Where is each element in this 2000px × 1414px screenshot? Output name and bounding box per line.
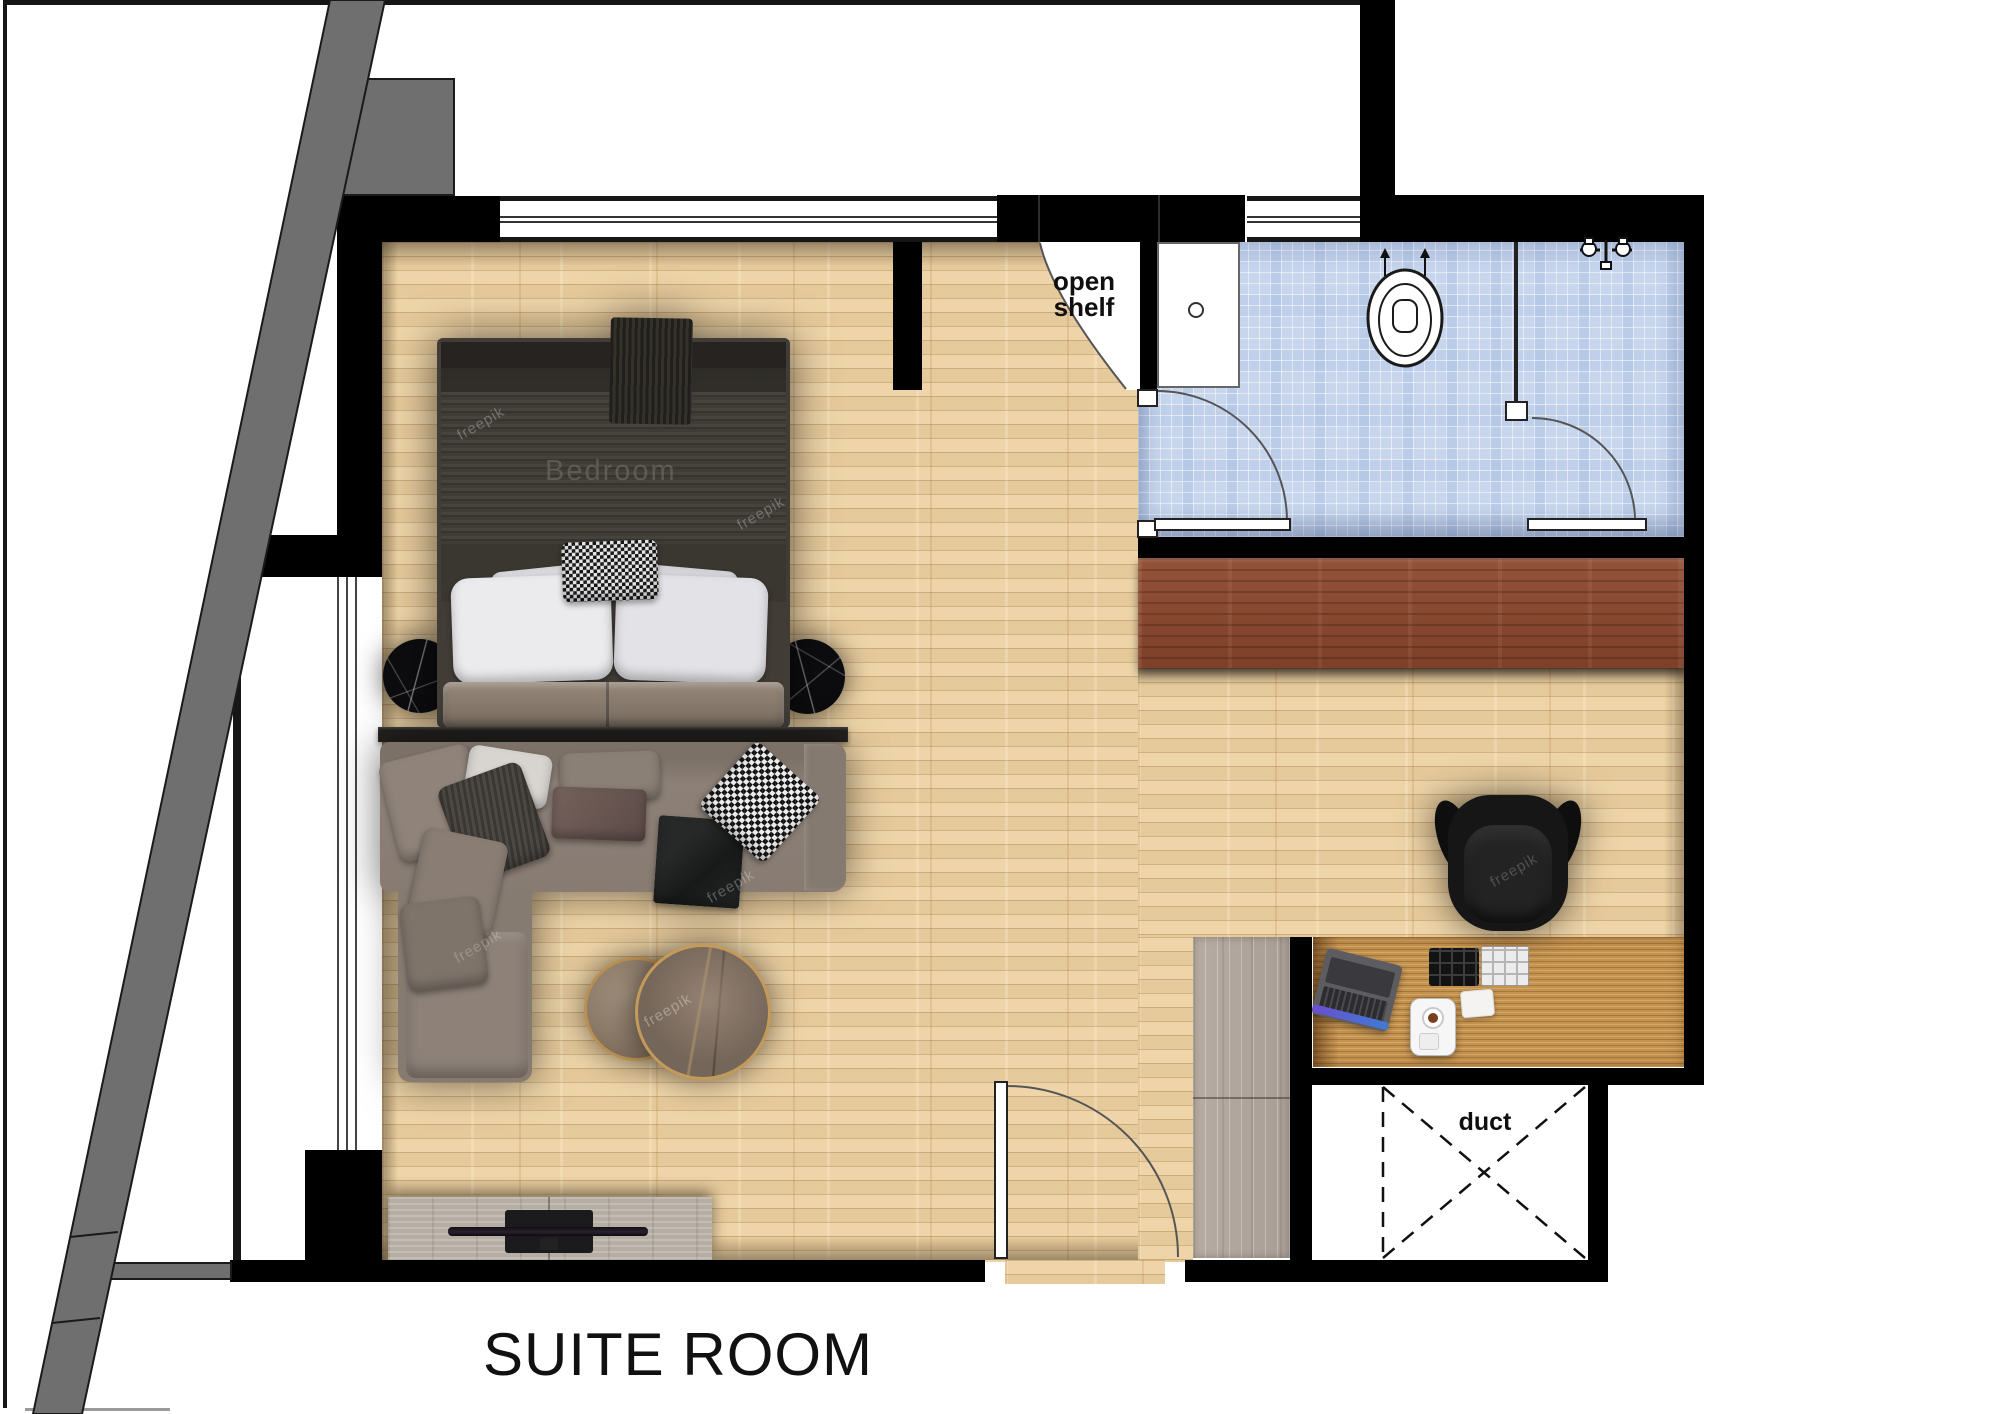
bathroom-door-arc [1157, 391, 1287, 521]
sofa-armrest-right [804, 744, 846, 890]
sofa-back-console [378, 727, 848, 742]
bed-throw-drape [609, 317, 693, 424]
open-shelf-label: open shelf [1048, 268, 1120, 320]
toilet [1368, 248, 1442, 366]
desk-keypad-black [1429, 948, 1479, 986]
entry-door-leaf [995, 1082, 1007, 1258]
sofa-pillow-mauve [551, 786, 647, 841]
shower-door-arc [1532, 418, 1635, 521]
duct-label: duct [1430, 1108, 1540, 1137]
floorplan-canvas: open shelf duct SUITE ROOM Bedroom freep… [0, 0, 2000, 1414]
bathroom-door-leaf-open [1155, 519, 1290, 530]
coffee-cup-drink [1428, 1013, 1438, 1023]
shower-valve-set [1580, 238, 1632, 269]
tv-screen-bar [448, 1227, 648, 1236]
shower-partition-jamb [1506, 402, 1527, 420]
coffee-machine [1410, 998, 1456, 1056]
desk-keypad-white [1481, 946, 1529, 986]
diagonal-structure-band [33, 0, 385, 1414]
plan-linework [0, 0, 2000, 1414]
desk-notepad [1460, 989, 1495, 1019]
bed-headboard-seam [606, 682, 609, 728]
tv-stand [540, 1238, 558, 1250]
shower-door-leaf-open [1528, 519, 1646, 530]
bed-headboard [443, 682, 784, 728]
bed [437, 330, 790, 730]
entry-door-swing-arc [1007, 1086, 1178, 1257]
coffee-tray [1419, 1033, 1439, 1050]
suite-room-title: SUITE ROOM [483, 1320, 873, 1389]
bedroom-watermark: Bedroom [545, 455, 677, 488]
bed-houndstooth-pillow [561, 539, 659, 602]
bathroom-door-jamb-top [1138, 390, 1157, 406]
